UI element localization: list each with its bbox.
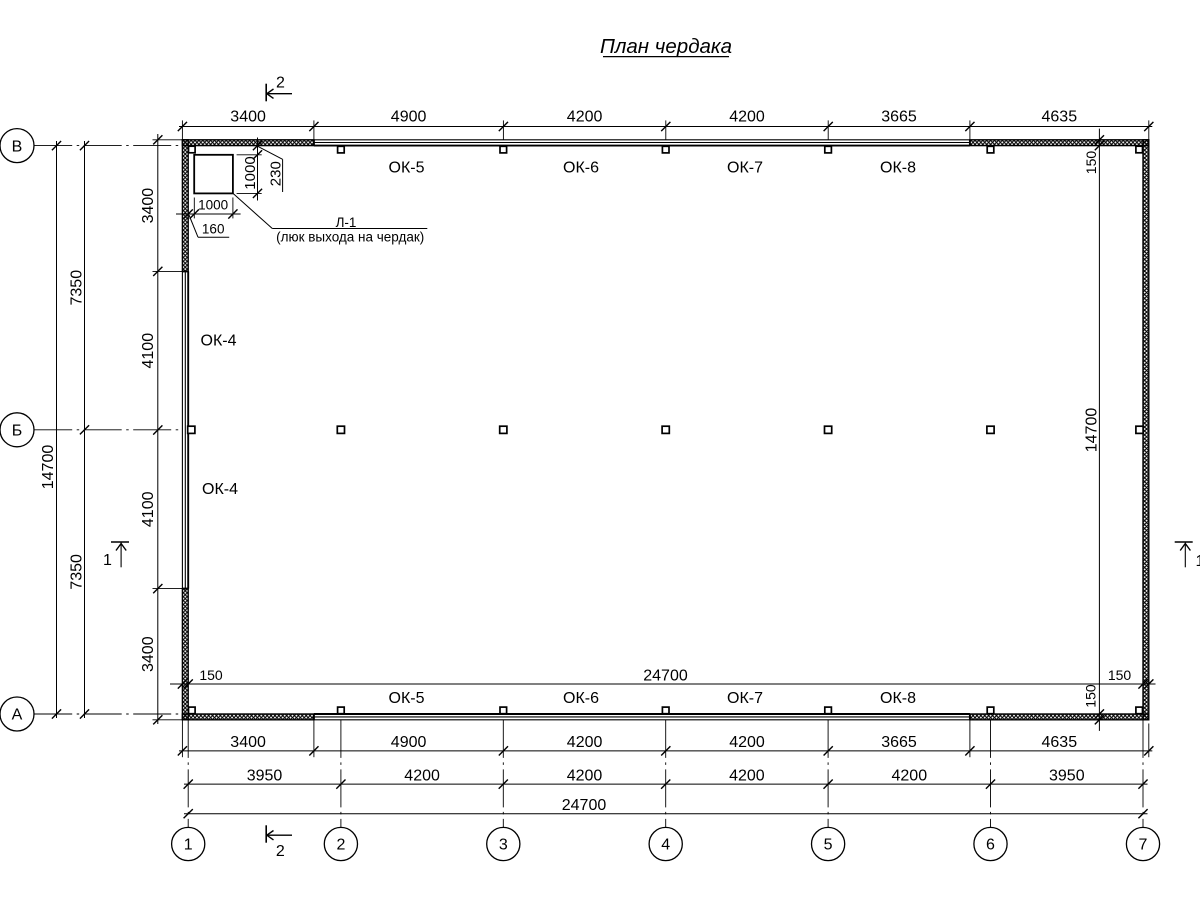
svg-text:150: 150 [1083, 151, 1099, 175]
svg-text:14700: 14700 [40, 445, 57, 490]
svg-text:ОК-8: ОК-8 [880, 690, 916, 707]
svg-text:6: 6 [986, 837, 995, 854]
svg-text:4200: 4200 [729, 767, 765, 784]
svg-text:План чердака: План чердака [600, 35, 732, 58]
svg-text:150: 150 [199, 667, 223, 683]
svg-text:7350: 7350 [68, 270, 85, 306]
svg-text:А: А [12, 707, 23, 724]
svg-text:2: 2 [276, 74, 285, 91]
svg-text:2: 2 [276, 843, 285, 860]
svg-text:3665: 3665 [881, 109, 917, 126]
svg-text:ОК-6: ОК-6 [563, 690, 599, 707]
svg-text:ОК-7: ОК-7 [727, 690, 763, 707]
svg-text:ОК-6: ОК-6 [563, 159, 599, 176]
svg-text:3400: 3400 [230, 734, 266, 751]
svg-text:4200: 4200 [567, 767, 603, 784]
svg-text:1: 1 [103, 552, 112, 569]
svg-text:150: 150 [1083, 684, 1099, 708]
svg-text:14700: 14700 [1084, 408, 1101, 453]
svg-text:ОК-5: ОК-5 [389, 690, 425, 707]
svg-text:(люк выхода на чердак): (люк выхода на чердак) [276, 229, 424, 244]
svg-text:4635: 4635 [1042, 109, 1078, 126]
svg-text:4200: 4200 [729, 734, 765, 751]
svg-text:3: 3 [499, 837, 508, 854]
svg-text:24700: 24700 [643, 667, 688, 684]
svg-text:ОК-8: ОК-8 [880, 159, 916, 176]
svg-text:7: 7 [1139, 837, 1148, 854]
svg-text:4100: 4100 [140, 491, 157, 527]
svg-text:7350: 7350 [68, 554, 85, 590]
svg-text:4200: 4200 [567, 109, 603, 126]
svg-text:Б: Б [12, 423, 23, 440]
svg-text:1: 1 [184, 837, 193, 854]
svg-text:1000: 1000 [198, 197, 228, 212]
svg-text:150: 150 [1108, 667, 1132, 683]
svg-text:Л-1: Л-1 [336, 215, 357, 230]
svg-text:3400: 3400 [140, 636, 157, 672]
svg-text:ОК-4: ОК-4 [201, 332, 237, 349]
svg-text:1: 1 [1196, 553, 1200, 570]
svg-text:24700: 24700 [562, 797, 607, 814]
svg-text:4: 4 [661, 837, 670, 854]
svg-text:ОК-5: ОК-5 [389, 159, 425, 176]
svg-text:4635: 4635 [1042, 734, 1078, 751]
svg-text:3665: 3665 [881, 734, 917, 751]
svg-text:4900: 4900 [391, 734, 427, 751]
svg-text:3950: 3950 [247, 767, 283, 784]
svg-text:3950: 3950 [1049, 767, 1085, 784]
svg-text:В: В [12, 138, 23, 155]
svg-text:ОК-4: ОК-4 [202, 481, 238, 498]
svg-text:1000: 1000 [242, 156, 259, 189]
svg-text:2: 2 [336, 837, 345, 854]
svg-text:230: 230 [268, 161, 285, 186]
svg-text:4200: 4200 [729, 109, 765, 126]
svg-text:4200: 4200 [892, 767, 928, 784]
svg-text:5: 5 [824, 837, 833, 854]
svg-text:160: 160 [202, 222, 225, 237]
svg-text:4900: 4900 [391, 109, 427, 126]
svg-text:4100: 4100 [140, 333, 157, 369]
svg-text:4200: 4200 [404, 767, 440, 784]
svg-text:ОК-7: ОК-7 [727, 159, 763, 176]
svg-text:3400: 3400 [230, 109, 266, 126]
svg-text:4200: 4200 [567, 734, 603, 751]
svg-text:3400: 3400 [140, 188, 157, 224]
